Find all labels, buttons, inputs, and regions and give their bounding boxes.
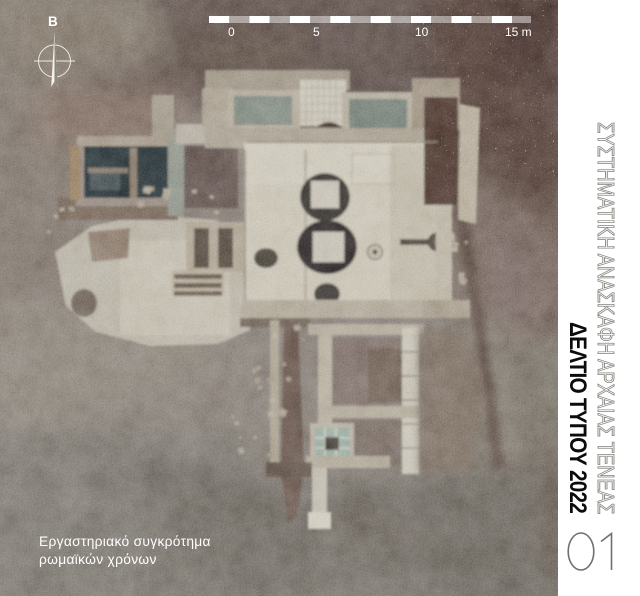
svg-text:5: 5 — [313, 25, 320, 39]
svg-text:10: 10 — [415, 25, 429, 39]
svg-text:B: B — [48, 14, 58, 29]
svg-text:15 m: 15 m — [505, 25, 532, 39]
svg-text:0: 0 — [228, 25, 235, 39]
